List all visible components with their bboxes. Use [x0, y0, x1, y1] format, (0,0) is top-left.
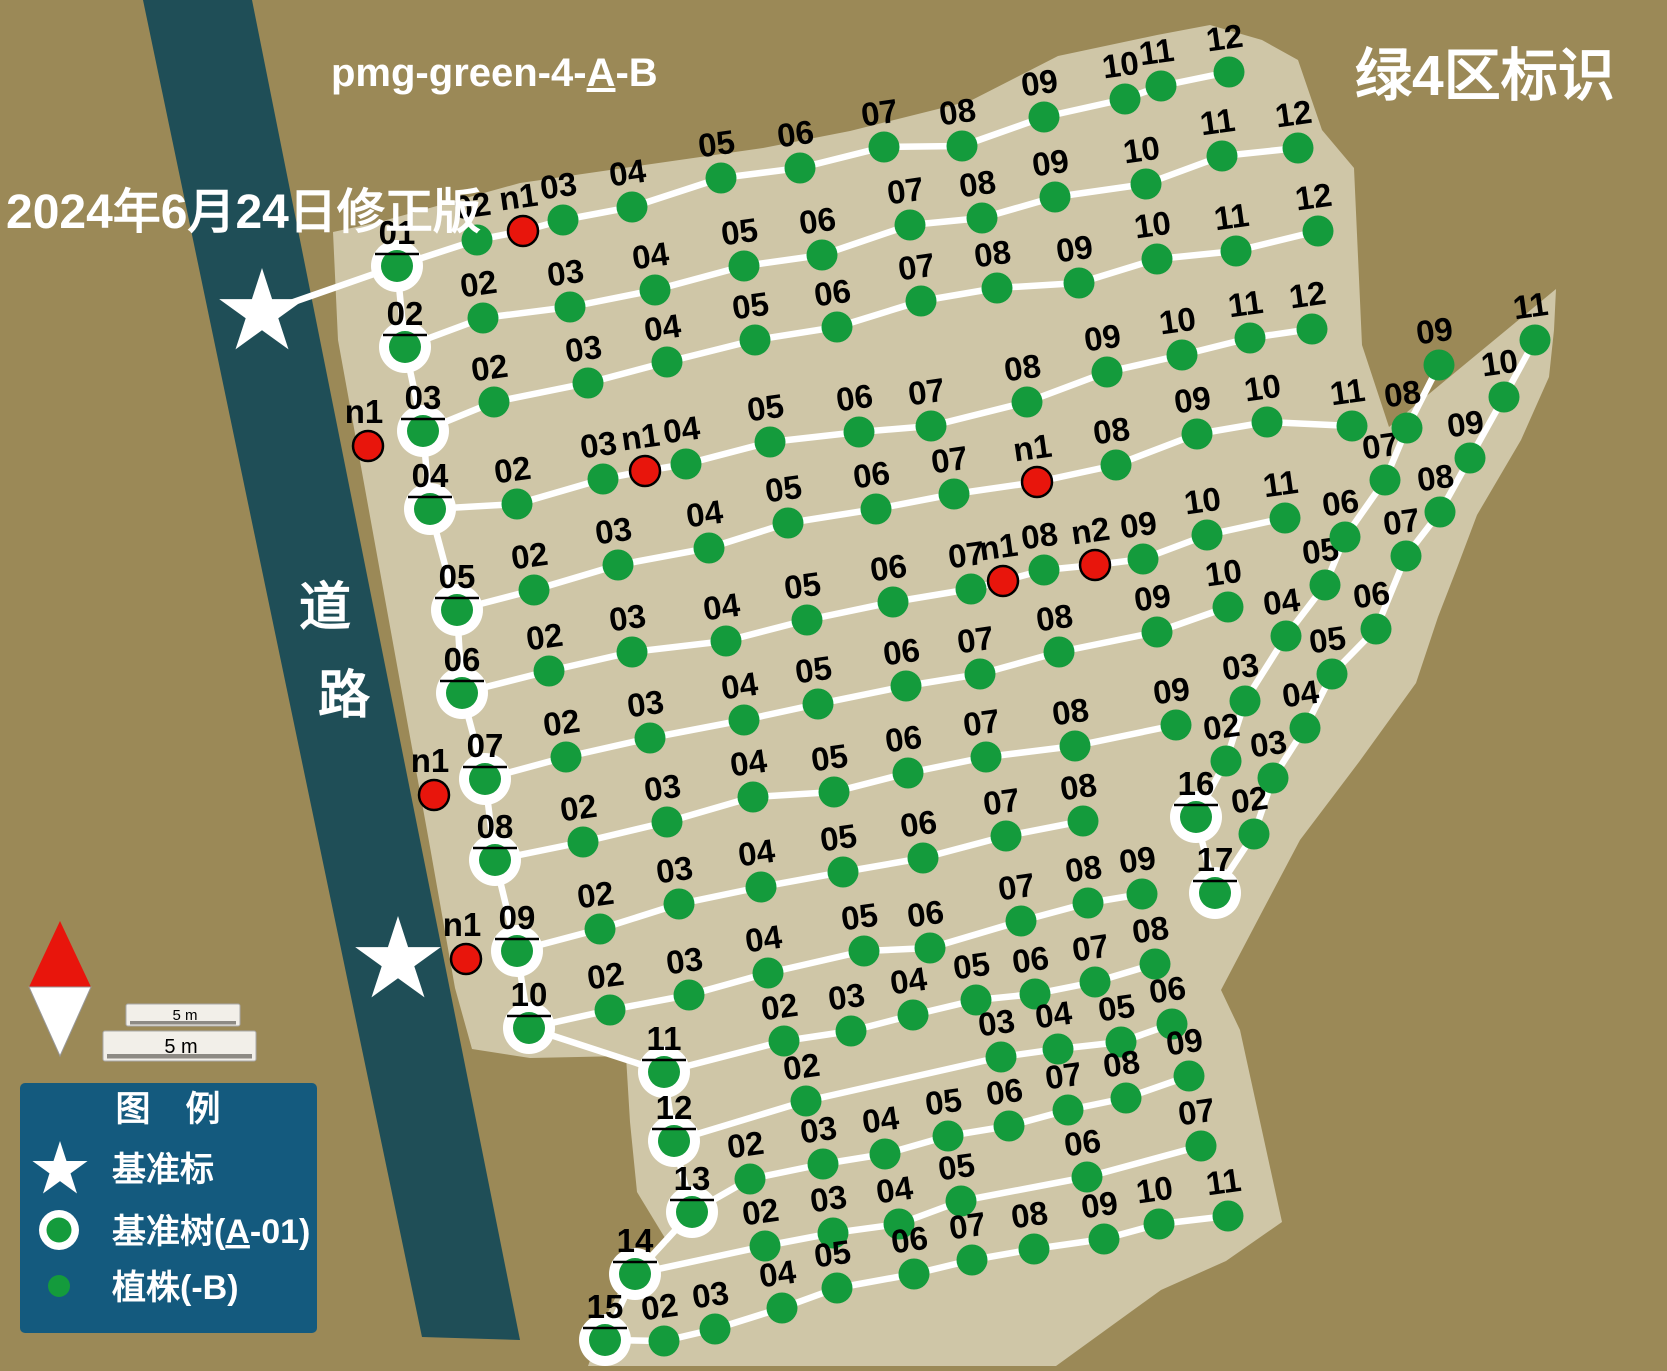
- svg-text:06: 06: [444, 641, 481, 678]
- svg-text:08: 08: [937, 91, 979, 133]
- svg-text:08: 08: [1130, 909, 1172, 951]
- svg-text:n1: n1: [497, 176, 540, 218]
- svg-text:图 例: 图 例: [115, 1090, 220, 1129]
- svg-text:05: 05: [923, 1081, 965, 1123]
- svg-text:12: 12: [656, 1089, 693, 1126]
- svg-text:n1: n1: [1011, 427, 1054, 469]
- svg-text:04: 04: [607, 152, 649, 194]
- svg-text:02: 02: [759, 986, 801, 1028]
- svg-text:03: 03: [405, 379, 442, 416]
- svg-text:04: 04: [642, 307, 684, 349]
- svg-text:04: 04: [874, 1169, 916, 1211]
- svg-text:06: 06: [984, 1071, 1026, 1113]
- svg-text:09: 09: [1164, 1021, 1206, 1063]
- svg-text:n2: n2: [1069, 510, 1112, 552]
- svg-text:02: 02: [387, 295, 424, 332]
- svg-text:基准标: 基准标: [112, 1151, 214, 1189]
- svg-text:04: 04: [630, 235, 672, 277]
- svg-text:03: 03: [625, 683, 667, 725]
- svg-text:04: 04: [743, 918, 785, 960]
- svg-text:06: 06: [881, 631, 923, 673]
- svg-text:06: 06: [889, 1219, 931, 1261]
- svg-text:12: 12: [1273, 93, 1315, 135]
- svg-text:路: 路: [318, 667, 371, 725]
- svg-text:05: 05: [782, 565, 824, 607]
- svg-text:n1: n1: [443, 906, 482, 943]
- svg-text:5 m: 5 m: [164, 1036, 197, 1058]
- svg-text:13: 13: [674, 1160, 711, 1197]
- svg-text:09: 09: [499, 899, 536, 936]
- svg-text:10: 10: [1242, 367, 1284, 409]
- svg-text:07: 07: [467, 727, 504, 764]
- svg-text:05: 05: [793, 649, 835, 691]
- svg-text:10: 10: [1121, 129, 1163, 171]
- svg-text:基准树(A-01): 基准树(A-01): [112, 1213, 310, 1251]
- svg-text:08: 08: [972, 233, 1014, 275]
- svg-text:07: 07: [981, 781, 1023, 823]
- svg-text:02: 02: [458, 263, 500, 305]
- svg-text:03: 03: [1248, 723, 1290, 765]
- svg-text:06: 06: [883, 718, 925, 760]
- svg-text:03: 03: [1220, 646, 1262, 688]
- svg-text:02: 02: [725, 1124, 767, 1166]
- svg-text:03: 03: [607, 597, 649, 639]
- svg-text:03: 03: [578, 424, 620, 466]
- svg-text:11: 11: [647, 1020, 682, 1057]
- svg-text:09: 09: [1132, 577, 1174, 619]
- svg-text:11: 11: [1137, 31, 1177, 72]
- svg-text:10: 10: [1479, 342, 1521, 384]
- svg-text:n1: n1: [345, 393, 384, 430]
- svg-text:07: 07: [1070, 927, 1112, 969]
- svg-text:03: 03: [538, 165, 580, 207]
- svg-text:04: 04: [701, 586, 743, 628]
- svg-text:02: 02: [575, 874, 617, 916]
- svg-text:04: 04: [1261, 581, 1303, 623]
- svg-text:08: 08: [1034, 597, 1076, 639]
- svg-text:05: 05: [818, 817, 860, 859]
- svg-text:08: 08: [1002, 347, 1044, 389]
- svg-text:07: 07: [947, 1205, 989, 1247]
- svg-text:04: 04: [661, 409, 703, 451]
- svg-text:03: 03: [642, 767, 684, 809]
- svg-text:n1: n1: [977, 526, 1020, 568]
- svg-text:02: 02: [740, 1191, 782, 1233]
- svg-text:02: 02: [781, 1046, 823, 1088]
- svg-text:06: 06: [775, 113, 817, 155]
- svg-text:04: 04: [736, 832, 778, 874]
- svg-text:09: 09: [1082, 317, 1124, 359]
- svg-text:09: 09: [1030, 142, 1072, 184]
- svg-text:09: 09: [1445, 403, 1487, 445]
- svg-text:03: 03: [976, 1002, 1018, 1044]
- svg-text:07: 07: [961, 702, 1003, 744]
- svg-text:05: 05: [809, 737, 851, 779]
- svg-text:06: 06: [834, 377, 876, 419]
- svg-text:06: 06: [905, 893, 947, 935]
- svg-text:07: 07: [929, 439, 971, 481]
- svg-text:04: 04: [860, 1099, 902, 1141]
- svg-text:08: 08: [1009, 1194, 1051, 1236]
- svg-text:04: 04: [684, 493, 726, 535]
- svg-text:08: 08: [1091, 410, 1133, 452]
- svg-text:06: 06: [851, 454, 893, 496]
- svg-text:02: 02: [585, 955, 627, 997]
- svg-text:n1: n1: [619, 416, 662, 458]
- svg-text:08: 08: [1101, 1043, 1143, 1085]
- svg-text:10: 10: [1132, 204, 1174, 246]
- svg-text:11: 11: [1226, 283, 1266, 324]
- svg-text:05: 05: [839, 896, 881, 938]
- svg-text:05: 05: [1096, 987, 1138, 1029]
- svg-text:14: 14: [617, 1222, 654, 1259]
- svg-text:07: 07: [1381, 501, 1423, 543]
- svg-text:03: 03: [664, 940, 706, 982]
- svg-text:06: 06: [1147, 969, 1189, 1011]
- svg-text:06: 06: [812, 272, 854, 314]
- svg-text:08: 08: [1058, 766, 1100, 808]
- svg-text:10: 10: [511, 976, 548, 1013]
- svg-text:10: 10: [1157, 300, 1199, 342]
- svg-text:03: 03: [690, 1274, 732, 1316]
- svg-text:05: 05: [696, 123, 738, 165]
- svg-text:09: 09: [1054, 228, 1096, 270]
- svg-text:04: 04: [412, 457, 449, 494]
- svg-text:5 m: 5 m: [172, 1007, 197, 1024]
- svg-text:02: 02: [541, 702, 583, 744]
- svg-text:08: 08: [1050, 691, 1092, 733]
- svg-text:08: 08: [1415, 457, 1457, 499]
- svg-text:05: 05: [439, 558, 476, 595]
- svg-text:04: 04: [1033, 994, 1075, 1036]
- svg-text:03: 03: [798, 1109, 840, 1151]
- svg-text:16: 16: [1178, 765, 1215, 802]
- svg-text:02: 02: [524, 616, 566, 658]
- svg-text:04: 04: [1280, 673, 1322, 715]
- svg-text:03: 03: [563, 328, 605, 370]
- svg-text:08: 08: [477, 808, 514, 845]
- svg-text:08: 08: [957, 163, 999, 205]
- svg-text:03: 03: [654, 849, 696, 891]
- svg-text:10: 10: [1100, 44, 1142, 86]
- svg-text:11: 11: [1261, 463, 1301, 504]
- svg-text:02: 02: [639, 1286, 681, 1328]
- svg-text:09: 09: [1079, 1184, 1121, 1226]
- svg-text:07: 07: [896, 246, 938, 288]
- svg-text:07: 07: [906, 371, 948, 413]
- svg-text:n1: n1: [411, 742, 450, 779]
- svg-text:绿4区标识: 绿4区标识: [1355, 44, 1615, 108]
- svg-text:12: 12: [1293, 176, 1335, 218]
- svg-text:06: 06: [1351, 574, 1393, 616]
- svg-text:03: 03: [545, 252, 587, 294]
- svg-text:08: 08: [1019, 515, 1061, 557]
- svg-text:07: 07: [996, 866, 1038, 908]
- svg-text:10: 10: [1134, 1169, 1176, 1211]
- svg-text:11: 11: [1204, 1161, 1244, 1202]
- svg-text:12: 12: [1204, 17, 1246, 59]
- svg-text:09: 09: [1151, 670, 1193, 712]
- svg-text:08: 08: [1382, 373, 1424, 415]
- svg-text:12: 12: [1287, 274, 1329, 316]
- svg-text:11: 11: [1212, 196, 1252, 237]
- svg-text:09: 09: [1172, 379, 1214, 421]
- svg-text:08: 08: [1063, 848, 1105, 890]
- svg-text:06: 06: [898, 803, 940, 845]
- svg-text:06: 06: [1062, 1122, 1104, 1164]
- svg-text:15: 15: [587, 1288, 624, 1325]
- svg-text:07: 07: [1176, 1091, 1218, 1133]
- svg-text:植株(-B): 植株(-B): [112, 1269, 239, 1307]
- svg-text:09: 09: [1118, 504, 1160, 546]
- svg-text:02: 02: [469, 347, 511, 389]
- svg-text:07: 07: [1043, 1055, 1085, 1097]
- svg-text:05: 05: [936, 1146, 978, 1188]
- svg-text:03: 03: [808, 1178, 850, 1220]
- svg-text:09: 09: [1117, 839, 1159, 881]
- svg-text:07: 07: [885, 170, 927, 212]
- svg-text:04: 04: [757, 1253, 799, 1295]
- svg-text:02: 02: [558, 787, 600, 829]
- svg-text:09: 09: [1414, 310, 1456, 352]
- svg-text:06: 06: [1320, 482, 1362, 524]
- svg-text:11: 11: [1198, 101, 1238, 142]
- svg-text:07: 07: [859, 92, 901, 134]
- svg-text:02: 02: [492, 449, 534, 491]
- svg-text:04: 04: [728, 742, 770, 784]
- svg-text:10: 10: [1203, 552, 1245, 594]
- svg-text:03: 03: [593, 510, 635, 552]
- svg-text:05: 05: [719, 211, 761, 253]
- svg-text:07: 07: [955, 619, 997, 661]
- svg-text:02: 02: [509, 535, 551, 577]
- svg-text:17: 17: [1197, 841, 1234, 878]
- svg-text:10: 10: [1182, 480, 1224, 522]
- svg-text:03: 03: [826, 976, 868, 1018]
- svg-text:06: 06: [868, 547, 910, 589]
- svg-text:06: 06: [797, 200, 839, 242]
- svg-text:09: 09: [1019, 62, 1061, 104]
- svg-text:道: 道: [299, 579, 351, 637]
- svg-text:04: 04: [719, 665, 761, 707]
- svg-text:06: 06: [1010, 939, 1052, 981]
- svg-text:05: 05: [951, 945, 993, 987]
- svg-text:05: 05: [1307, 619, 1349, 661]
- svg-text:05: 05: [763, 468, 805, 510]
- svg-text:11: 11: [1328, 371, 1368, 412]
- svg-text:11: 11: [1511, 285, 1551, 326]
- svg-text:05: 05: [812, 1233, 854, 1275]
- svg-text:05: 05: [745, 387, 787, 429]
- svg-text:2024年6月24日修正版: 2024年6月24日修正版: [6, 186, 481, 239]
- svg-text:05: 05: [730, 285, 772, 327]
- svg-text:pmg-green-4-A-B: pmg-green-4-A-B: [331, 51, 658, 95]
- svg-text:04: 04: [888, 960, 930, 1002]
